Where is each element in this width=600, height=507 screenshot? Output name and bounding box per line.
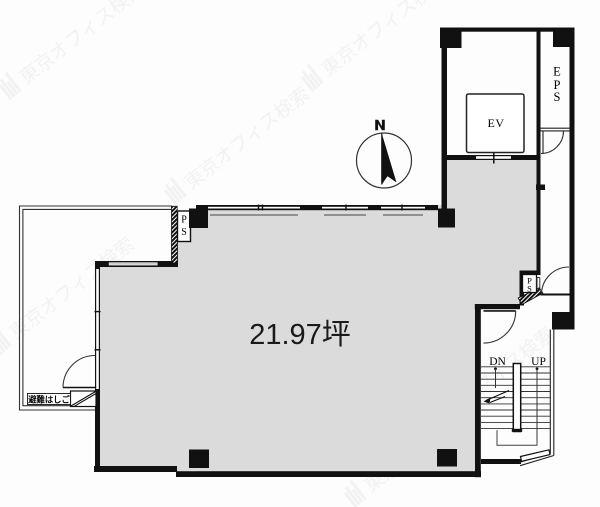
svg-text:DN: DN	[489, 356, 506, 368]
svg-text:S: S	[181, 227, 187, 238]
svg-text:P: P	[181, 215, 187, 226]
svg-text:21.97坪: 21.97坪	[249, 318, 351, 351]
svg-text:E: E	[553, 65, 561, 79]
svg-text:避難はしご: 避難はしご	[27, 394, 70, 404]
svg-text:S: S	[554, 90, 561, 104]
svg-text:EV: EV	[488, 116, 505, 130]
svg-text:UP: UP	[531, 356, 546, 368]
svg-text:S: S	[527, 284, 532, 294]
